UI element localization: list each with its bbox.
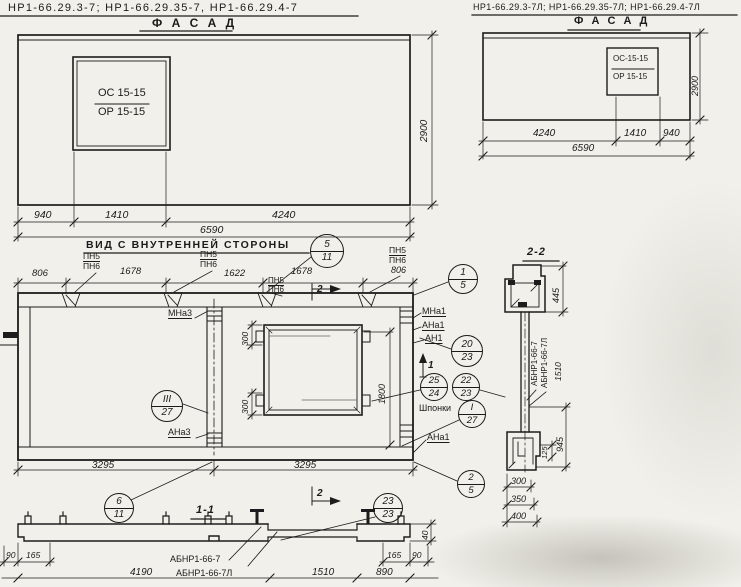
dim-1410-r: 1410: [624, 129, 646, 139]
dim-3295-right: 3295: [294, 461, 316, 471]
dim-300-bottom: 300: [241, 400, 250, 414]
callout-20-23-top: 20: [452, 340, 482, 352]
dim-1678-right: 1678: [291, 267, 312, 277]
callout-22-23-top: 22: [453, 376, 479, 388]
dim-806-left: 806: [32, 269, 48, 279]
dim-945: 945: [556, 437, 565, 452]
dim-1410: 1410: [105, 210, 128, 221]
section-1-1-title: 1-1: [196, 505, 215, 516]
dim-6590-r: 6590: [572, 144, 594, 154]
dim-6590: 6590: [200, 225, 223, 236]
callout-I-27-bottom: 27: [459, 415, 485, 426]
dim-1678-left: 1678: [120, 267, 141, 277]
dim-1800: 1800: [378, 384, 387, 404]
callout-1-5: 1 5: [448, 264, 478, 294]
label-ana3: АНа3: [168, 428, 191, 437]
blueprint-sheet: НР1-66.29.3-7; НР1-66.29.35-7, НР1-66.29…: [0, 0, 741, 587]
label-pn6-3: ПН6: [268, 286, 284, 294]
callout-III-27-bottom: 27: [152, 407, 182, 418]
callout-25-24-top: 25: [421, 376, 447, 388]
left-facade-header: НР1-66.29.3-7; НР1-66.29.35-7, НР1-66.29…: [8, 3, 298, 14]
callout-III-27-top: III: [152, 395, 182, 407]
callout-5-11-top: 5: [311, 240, 343, 252]
label-abnr-l-1-1: АБНР1-66-7Л: [176, 569, 232, 578]
dim-4240-r: 4240: [533, 129, 555, 139]
dim-940: 940: [34, 210, 52, 221]
label-abnr-l-2-2: АБНР1-66-7Л: [541, 338, 549, 388]
callout-25-24-bottom: 24: [421, 388, 447, 399]
callout-20-23-bottom: 23: [452, 352, 482, 363]
label-pn5-2: ПН5: [200, 250, 217, 259]
callout-2-5: 2 5: [457, 470, 485, 498]
dim-165-left: 165: [26, 551, 40, 560]
callout-6-11-bottom: 11: [105, 509, 133, 520]
label-mna3: МНа3: [168, 309, 192, 318]
label-pn5-1: ПН5: [83, 252, 100, 261]
callout-22-23-bottom: 23: [453, 388, 479, 399]
callout-5-11-bottom: 11: [311, 252, 343, 263]
label-ana1: АНа1: [422, 321, 445, 330]
callout-I-27-top: I: [459, 403, 485, 415]
callout-25-24: 25 24: [420, 373, 448, 401]
callout-2-5-bottom: 5: [458, 485, 484, 496]
section2-marker-bottom: 2: [317, 489, 323, 499]
label-pn5-3: ПН5: [268, 277, 284, 285]
callout-23-23-bottom: 23: [374, 509, 402, 520]
callout-III-27: III 27: [151, 390, 183, 422]
dim-400-2-2: 400: [511, 512, 526, 521]
left-window-mark-bottom: ОР 15-15: [98, 107, 145, 118]
right-facade-header: НР1-66.29.3-7Л; НР1-66.29.35-7Л; НР1-66.…: [473, 3, 700, 12]
section-2-2-title: 2-2: [527, 247, 546, 258]
dim-90-right: 90: [412, 551, 421, 560]
callout-2-5-top: 2: [458, 473, 484, 485]
dim-350-2-2: 350: [511, 495, 526, 504]
dim-2900: 2900: [420, 120, 430, 142]
label-mna1: МНа1: [422, 307, 446, 316]
dim-3295-left: 3295: [92, 461, 114, 471]
callout-22-23: 22 23: [452, 373, 480, 401]
dim-1510-2-2: 1510: [554, 362, 563, 381]
label-an1: АН1: [425, 334, 443, 343]
section2-marker-top: 2: [317, 285, 323, 295]
right-facade-title: Ф А С А Д: [574, 16, 650, 27]
dim-300-top: 300: [241, 332, 250, 346]
callout-I-27: I 27: [458, 400, 486, 428]
callout-5-11: 5 11: [310, 234, 344, 268]
dim-1510-1-1: 1510: [312, 568, 334, 578]
dim-2900-r: 2900: [691, 76, 700, 96]
label-shponki: Шпонки: [419, 404, 451, 413]
label-ana1-bottom: АНа1: [427, 433, 450, 442]
callout-6-11: 6 11: [104, 493, 134, 523]
callout-1-5-top: 1: [449, 268, 477, 280]
right-window-mark-top: ОС-15-15: [613, 55, 648, 63]
dim-940-r: 940: [663, 129, 680, 139]
dim-445: 445: [552, 288, 561, 303]
dim-125: 125: [541, 446, 549, 459]
label-abnr-2-2: АБНР1-66-7: [531, 341, 539, 386]
section1-marker: 1: [428, 361, 434, 371]
left-facade-title: Ф А С А Д: [152, 17, 237, 29]
dim-4190: 4190: [130, 568, 152, 578]
inner-view-title: ВИД С ВНУТРЕННЕЙ СТОРОНЫ: [86, 240, 290, 251]
label-pn6-4: ПН6: [389, 256, 406, 265]
label-pn6-2: ПН6: [200, 260, 217, 269]
label-abnr-1-1: АБНР1-66-7: [170, 555, 220, 564]
callout-1-5-bottom: 5: [449, 280, 477, 291]
callout-6-11-top: 6: [105, 497, 133, 509]
dim-1622: 1622: [224, 269, 245, 279]
callout-23-23: 23 23: [373, 493, 403, 523]
right-window-mark-bottom: ОР 15-15: [613, 73, 647, 81]
dim-4240: 4240: [272, 210, 295, 221]
dim-40: 40: [421, 531, 430, 540]
label-pn5-4: ПН5: [389, 246, 406, 255]
callout-23-23-top: 23: [374, 497, 402, 509]
dim-90-left: 90: [6, 551, 15, 560]
label-pn6-1: ПН6: [83, 262, 100, 271]
callout-20-23: 20 23: [451, 335, 483, 367]
dim-300-2-2: 300: [511, 477, 526, 486]
dim-165-right: 165: [387, 551, 401, 560]
left-window-mark-top: ОС 15-15: [98, 88, 146, 99]
dim-806-right: 806: [391, 266, 406, 275]
dim-890: 890: [376, 568, 393, 578]
